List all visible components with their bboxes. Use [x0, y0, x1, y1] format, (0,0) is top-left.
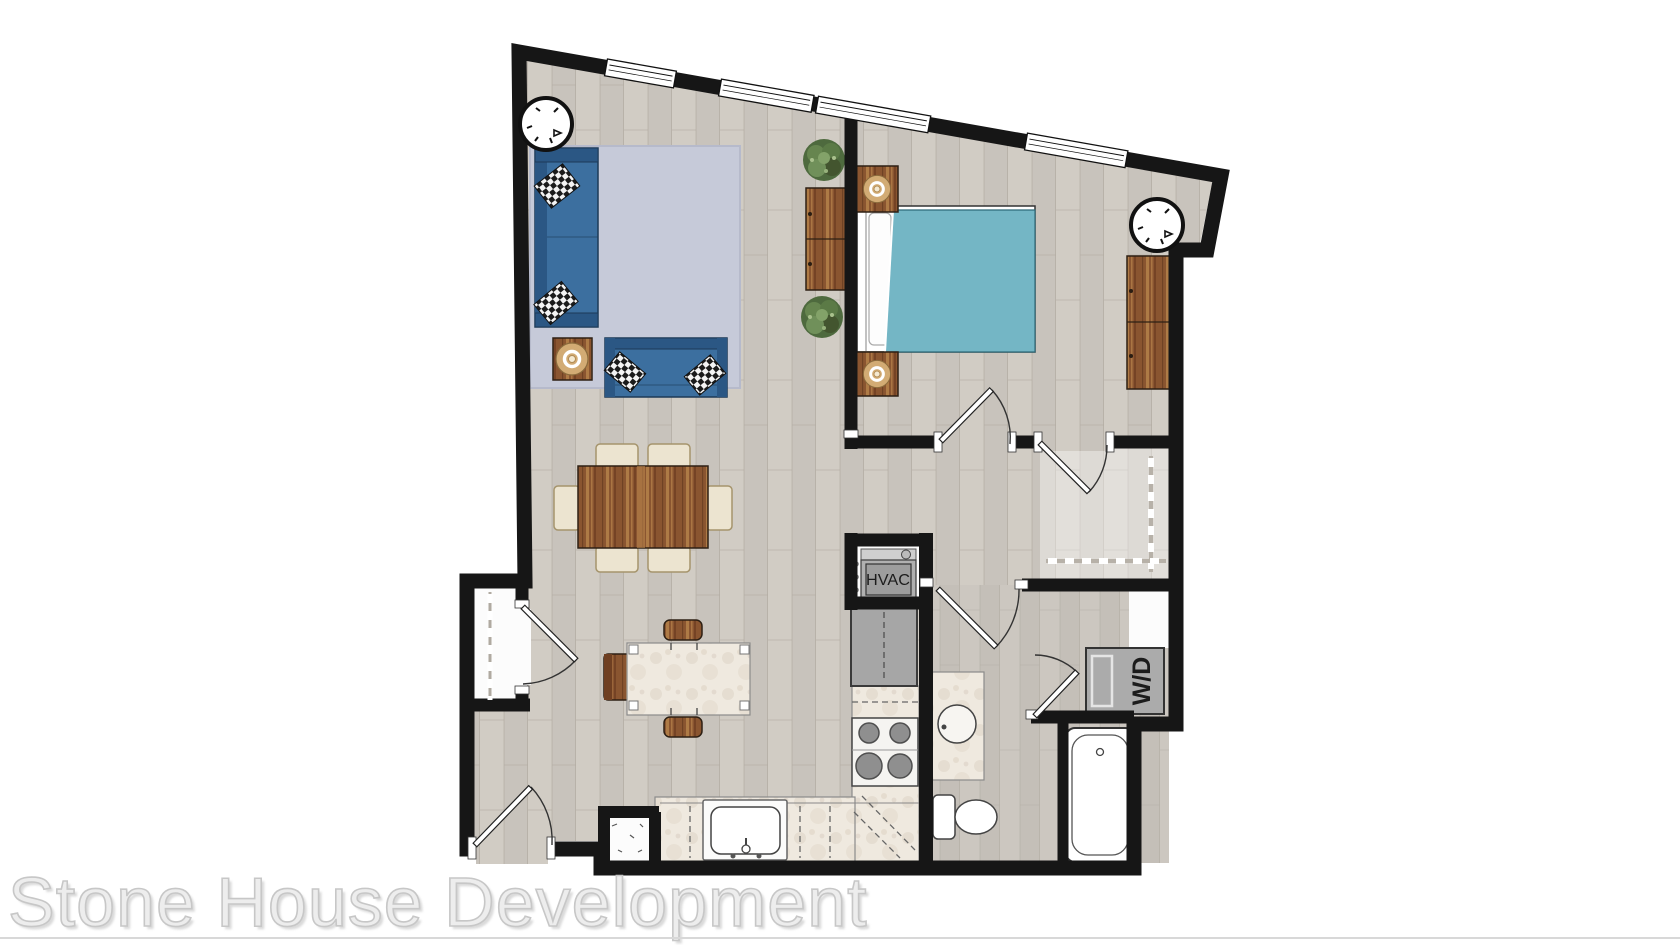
dining-chair — [706, 486, 732, 530]
dining-chair — [596, 546, 638, 572]
dining-table — [578, 466, 708, 548]
hvac-unit: HVAC — [853, 549, 916, 598]
kitchen-sink — [703, 800, 787, 860]
ceiling-light-icon — [520, 98, 572, 150]
plant-icon — [801, 296, 843, 338]
stove — [852, 718, 918, 786]
pantry-floor — [604, 817, 651, 862]
vanity — [932, 672, 984, 780]
bar-stool — [664, 620, 702, 640]
bottom-divider-line — [0, 937, 1680, 939]
sofa — [534, 148, 598, 327]
bar-stool — [664, 717, 702, 737]
dining-chair — [554, 486, 580, 530]
bedside-lamp — [863, 175, 890, 202]
island-chair — [604, 654, 630, 700]
hvac-label: HVAC — [866, 572, 910, 589]
washer-dryer: W/D — [1086, 648, 1164, 714]
washer-dryer-label: W/D — [1128, 657, 1156, 706]
laundry-nook-floor — [1129, 591, 1169, 648]
table-lamp — [556, 343, 588, 375]
floor-plan-image: HVAC — [0, 0, 1680, 945]
bed — [857, 206, 1035, 352]
side-table — [553, 338, 592, 380]
bathtub — [1066, 728, 1134, 862]
nightstand — [856, 352, 898, 396]
nightstand — [856, 166, 898, 212]
bedside-lamp — [863, 360, 890, 387]
watermark-text: Stone House Development — [8, 862, 868, 942]
loveseat — [604, 338, 727, 397]
refrigerator — [851, 606, 917, 686]
ceiling-light-icon — [1131, 199, 1183, 251]
floor-plan-page: HVAC — [0, 0, 1680, 945]
dresser — [1127, 256, 1170, 389]
dining-chair — [648, 546, 690, 572]
kitchen-island — [627, 643, 750, 715]
media-console — [806, 188, 847, 290]
plant-icon — [803, 139, 845, 181]
